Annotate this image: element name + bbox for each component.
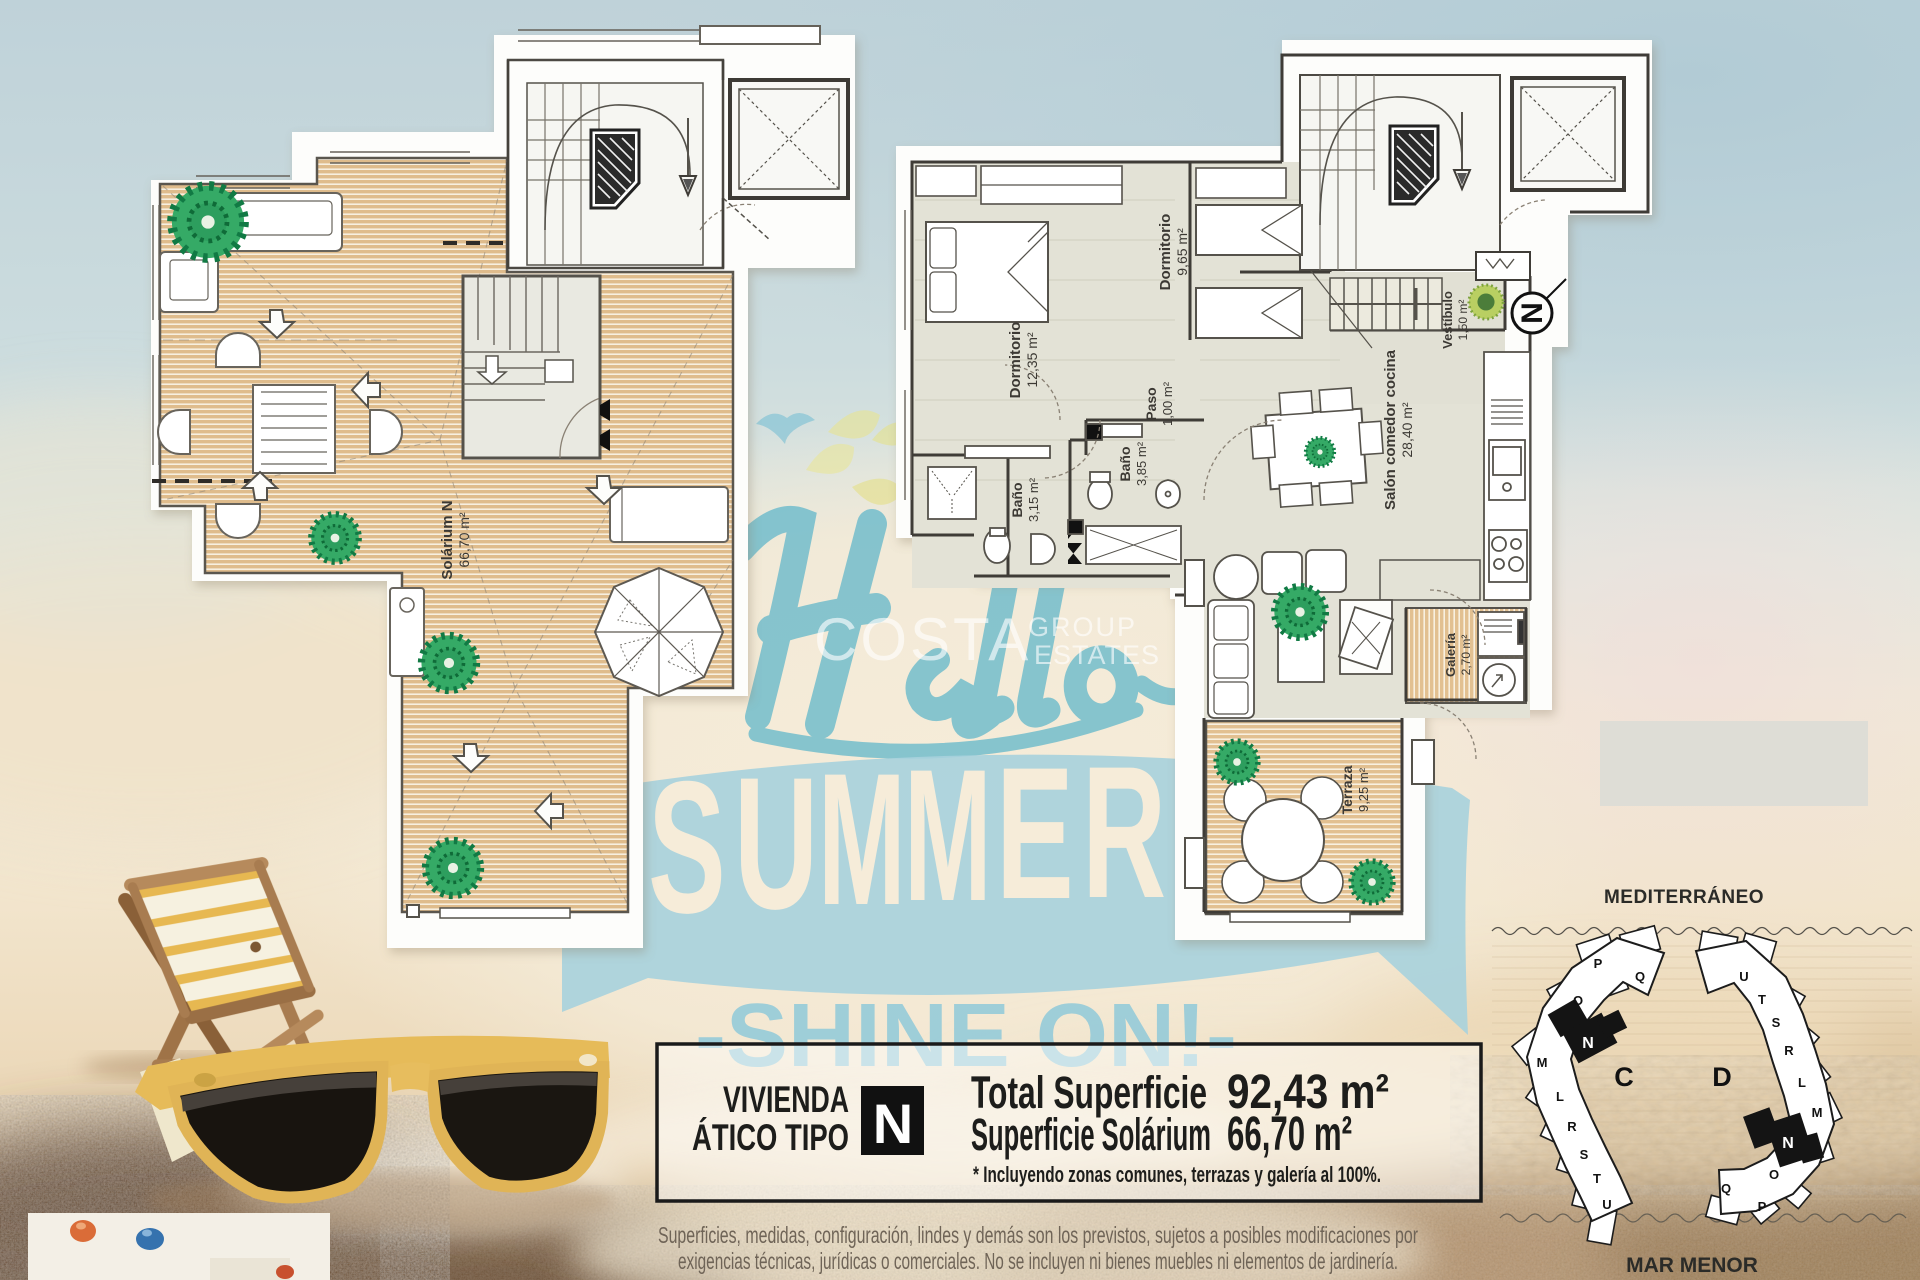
svg-text:T: T	[1758, 992, 1766, 1007]
svg-text:Superficie Solárium: Superficie Solárium	[971, 1109, 1211, 1160]
svg-text:L: L	[1798, 1075, 1806, 1090]
svg-text:R: R	[1082, 728, 1166, 938]
svg-text:VIVIENDA: VIVIENDA	[723, 1079, 849, 1120]
svg-text:Q: Q	[1721, 1181, 1731, 1196]
svg-text:Superficies, medidas, configur: Superficies, medidas, configuración, lin…	[658, 1222, 1418, 1248]
svg-text:O: O	[1769, 1167, 1779, 1182]
svg-text:E: E	[996, 729, 1074, 939]
svg-text:Q: Q	[1635, 969, 1645, 984]
svg-text:* Incluyendo zonas comunes, te: * Incluyendo zonas comunes, terrazas y g…	[973, 1162, 1381, 1187]
svg-text:C: C	[1614, 1062, 1634, 1092]
svg-text:P: P	[1758, 1199, 1767, 1214]
svg-text:U: U	[1739, 969, 1748, 984]
svg-text:Solárium N: Solárium N	[439, 500, 456, 579]
svg-text:MAR MENOR: MAR MENOR	[1626, 1254, 1758, 1277]
svg-text:Terraza: Terraza	[1339, 765, 1355, 814]
svg-text:Paso: Paso	[1143, 387, 1159, 420]
svg-text:O: O	[1573, 993, 1583, 1008]
svg-text:P: P	[1594, 956, 1603, 971]
svg-text:Dormitorio: Dormitorio	[1157, 214, 1174, 291]
svg-text:9,65 m²: 9,65 m²	[1174, 228, 1190, 276]
svg-text:Vestíbulo: Vestíbulo	[1440, 291, 1455, 349]
svg-text:N: N	[1782, 1135, 1794, 1152]
svg-text:3,85 m²: 3,85 m²	[1134, 441, 1149, 486]
svg-text:GROUP: GROUP	[1028, 612, 1137, 642]
svg-text:28,40 m²: 28,40 m²	[1399, 402, 1415, 458]
svg-text:ÁTICO TIPO: ÁTICO TIPO	[692, 1117, 849, 1158]
svg-text:M: M	[1537, 1055, 1548, 1070]
svg-text:S: S	[648, 743, 726, 953]
svg-text:3,15 m²: 3,15 m²	[1026, 477, 1041, 522]
svg-text:Baño: Baño	[1009, 483, 1025, 518]
svg-text:Salón comedor cocina: Salón comedor cocina	[1382, 349, 1399, 510]
svg-text:R: R	[1567, 1119, 1577, 1134]
svg-text:exigencias técnicas, jurídicas: exigencias técnicas, jurídicas o comerci…	[678, 1248, 1398, 1274]
svg-text:U: U	[1602, 1197, 1611, 1212]
svg-text:Dormitorio: Dormitorio	[1007, 322, 1024, 399]
svg-text:66,70 m²: 66,70 m²	[1227, 1108, 1352, 1161]
svg-text:1,00 m²: 1,00 m²	[1160, 381, 1175, 426]
svg-text:1,50 m²: 1,50 m²	[1456, 300, 1470, 341]
svg-text:MEDITERRÁNEO: MEDITERRÁNEO	[1604, 886, 1764, 908]
svg-text:2,70 m²: 2,70 m²	[1459, 635, 1473, 676]
svg-text:ESTATES: ESTATES	[1034, 640, 1160, 670]
svg-text:M: M	[904, 731, 992, 941]
svg-text:66,70 m²: 66,70 m²	[456, 512, 472, 568]
svg-text:M: M	[1812, 1105, 1823, 1120]
svg-text:S: S	[1580, 1147, 1589, 1162]
svg-text:N: N	[1582, 1035, 1594, 1052]
svg-text:L: L	[1556, 1089, 1564, 1104]
svg-text:U: U	[734, 739, 818, 949]
svg-text:Baño: Baño	[1117, 447, 1133, 482]
svg-text:D: D	[1712, 1062, 1732, 1092]
svg-text:T: T	[1593, 1171, 1601, 1186]
svg-text:12,35 m²: 12,35 m²	[1024, 332, 1040, 388]
svg-text:N: N	[1516, 302, 1549, 324]
svg-text:Galería: Galería	[1443, 632, 1458, 677]
svg-text:S: S	[1772, 1015, 1781, 1030]
svg-text:9,25 m²: 9,25 m²	[1356, 767, 1371, 812]
svg-text:COSTA: COSTA	[814, 606, 1031, 673]
svg-text:M: M	[818, 735, 906, 945]
svg-text:N: N	[873, 1092, 913, 1155]
svg-text:R: R	[1784, 1043, 1794, 1058]
